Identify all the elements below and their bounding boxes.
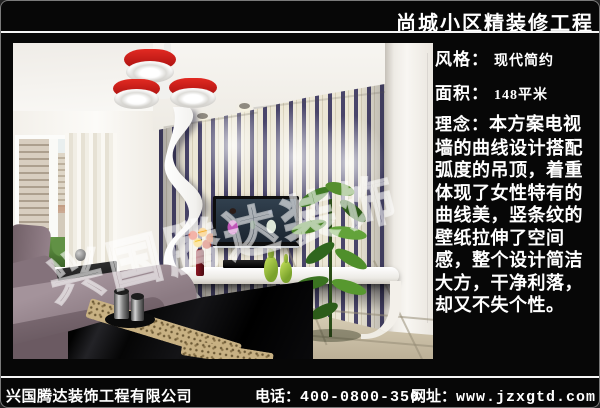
company-name: 兴国腾达装饰工程有限公司 — [6, 385, 192, 406]
info-panel: 风格： 现代简约 面积： 148平米 理念：本方案电视墙的曲线设计搭配弧度的吊顶… — [435, 45, 597, 317]
presentation-card: 尚城小区精装修工程 — [0, 0, 600, 408]
plant-leaf — [324, 179, 356, 198]
plant-leaf — [303, 238, 338, 267]
area-value: 148平米 — [494, 84, 548, 104]
recessed-downlight — [239, 103, 250, 109]
web-label: 网址： — [411, 389, 456, 405]
style-row: 风格： 现代简约 — [435, 45, 597, 70]
concept-text: 本方案电视墙的曲线设计搭配弧度的吊顶，着重体现了女性特有的曲线美，竖条纹的壁纸拉… — [435, 114, 583, 315]
living-room-photo: 兴国腾达装饰 — [13, 43, 433, 359]
phone-number: 400-0800-350 — [300, 389, 420, 406]
concept-paragraph: 理念：本方案电视墙的曲线设计搭配弧度的吊顶，着重体现了女性特有的曲线美，竖条纹的… — [435, 113, 597, 317]
tv-screen — [216, 199, 296, 242]
green-vase — [264, 256, 278, 282]
canister-tray — [105, 311, 155, 328]
concept-label: 理念： — [435, 115, 489, 134]
web-url: www.jzxgtd.com — [456, 389, 596, 406]
style-label: 风格： — [435, 45, 489, 70]
phone-label: 电话： — [255, 389, 300, 405]
plant-leaf — [332, 245, 369, 273]
style-value: 现代简约 — [494, 50, 554, 70]
ceiling-lamp-ring — [169, 78, 217, 108]
title-bar: 尚城小区精装修工程 — [1, 1, 600, 31]
flower-vase — [196, 249, 204, 276]
plant-leaf — [328, 224, 368, 242]
media-player — [223, 260, 267, 268]
tv — [213, 196, 299, 248]
area-label: 面积： — [435, 79, 489, 104]
plant-stem — [329, 199, 332, 337]
ceiling-lamp-ring — [113, 79, 160, 109]
area-row: 面积： 148平米 — [435, 79, 597, 104]
kettle — [75, 249, 86, 261]
steel-canister — [114, 291, 129, 319]
footer-bar: 兴国腾达装饰工程有限公司 电话：400-0800-350 网址：www.jzxg… — [1, 378, 600, 408]
top-divider-line — [1, 31, 600, 33]
plant-leaf — [290, 217, 328, 238]
website-entry: 网址：www.jzxgtd.com — [411, 385, 596, 406]
phone-entry: 电话：400-0800-350 — [255, 385, 420, 406]
steel-canister — [131, 296, 144, 321]
plant-leaf — [337, 196, 369, 226]
wall-panel-line — [427, 53, 428, 323]
plant-leaf — [330, 276, 368, 299]
